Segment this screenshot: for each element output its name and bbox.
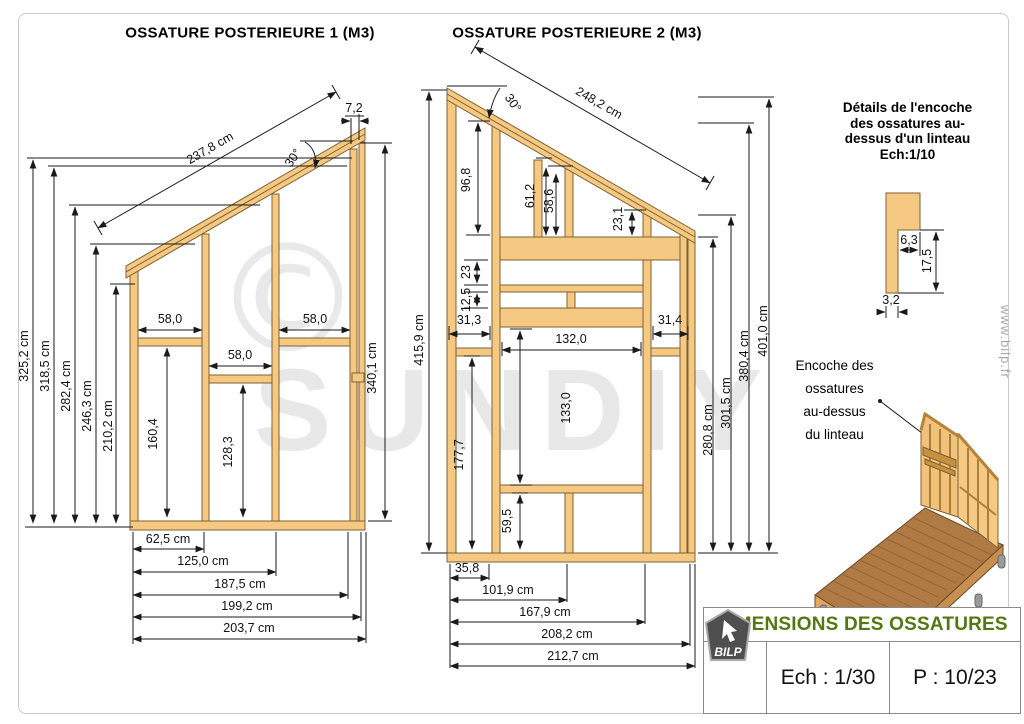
dim-label: 415,9 cm bbox=[412, 314, 426, 365]
dim-label: 23,1 bbox=[611, 207, 625, 231]
frame1-structure bbox=[126, 128, 365, 530]
bilp-logo-icon: BILP bbox=[704, 608, 752, 662]
dim-label: 59,5 bbox=[500, 509, 514, 533]
dim-label: 7,2 bbox=[345, 101, 362, 115]
dim-label: 282,4 cm bbox=[59, 360, 73, 411]
lintel-notch-callout: Encoche des ossatures au-dessus du linte… bbox=[786, 354, 883, 446]
callout-line: ossatures bbox=[786, 377, 883, 400]
detail-title: Détails de l'encoche des ossatures au- d… bbox=[815, 100, 1000, 162]
dim-label: 58,6 bbox=[542, 189, 556, 213]
dim-label: 160,4 bbox=[146, 418, 160, 449]
dim-label: 208,2 cm bbox=[541, 627, 592, 641]
dim-label: 23 bbox=[459, 265, 473, 279]
dim-label: 35,8 bbox=[455, 561, 479, 575]
dim-label: 17,5 bbox=[920, 249, 934, 273]
callout-line: au-dessus bbox=[786, 400, 883, 423]
dim-label: 128,3 bbox=[221, 436, 235, 467]
dim-label: 6,3 bbox=[900, 233, 917, 247]
detail-title-line: Ech:1/10 bbox=[815, 147, 1000, 163]
detail-title-line: Détails de l'encoche bbox=[815, 100, 1000, 116]
callout-line: Encoche des bbox=[786, 354, 883, 377]
dim-label: 212,7 cm bbox=[547, 649, 598, 663]
dim-label: 96,8 bbox=[459, 168, 473, 192]
dim-label: 62,5 cm bbox=[146, 532, 190, 546]
dim-label: 199,2 cm bbox=[221, 599, 272, 613]
dim-label: 3,2 bbox=[882, 293, 899, 307]
title-block: DIMENSIONS DES OSSATURES BILP Ech : 1/30… bbox=[703, 607, 1021, 714]
bilp-logo-text: BILP bbox=[714, 645, 742, 659]
dim-label: 246,3 cm bbox=[80, 380, 94, 431]
scale-cell: Ech : 1/30 bbox=[767, 642, 890, 713]
dim-label: 12,5 bbox=[459, 288, 473, 312]
dim-label: 61,2 bbox=[523, 184, 537, 208]
dim-label: 125,0 cm bbox=[177, 554, 228, 568]
dim-label: 401,0 cm bbox=[756, 305, 770, 356]
dim-label: 325,2 cm bbox=[17, 330, 31, 381]
dim-label: 187,5 cm bbox=[214, 577, 265, 591]
dim-label: 132,0 bbox=[555, 332, 586, 346]
dim-label: 101,9 cm bbox=[482, 583, 533, 597]
dim-label: 31,3 bbox=[457, 313, 481, 327]
bilp-logo: BILP bbox=[704, 642, 767, 713]
dim-label: 380,4 cm bbox=[737, 330, 751, 381]
dim-label: 280,8 cm bbox=[701, 404, 715, 455]
dim-label: 203,7 cm bbox=[223, 621, 274, 635]
dim-label: 318,5 cm bbox=[38, 340, 52, 391]
detail-title-line: des ossatures au- bbox=[815, 116, 1000, 132]
dim-label: 133,0 bbox=[559, 392, 573, 423]
dim-label: 31,4 bbox=[658, 313, 682, 327]
drawing-sheet: © SUNDIY www.bilp.fr bbox=[0, 0, 1024, 724]
dim-label: 210,2 cm bbox=[101, 400, 115, 451]
dim-label: 301,5 cm bbox=[719, 377, 733, 428]
dim-label: 340,1 cm bbox=[365, 342, 379, 393]
dim-label: 58,0 bbox=[228, 348, 252, 362]
detail-title-line: dessus d'un linteau bbox=[815, 131, 1000, 147]
dim-label: 167,9 cm bbox=[519, 605, 570, 619]
frame1-title: OSSATURE POSTERIEURE 1 (M3) bbox=[125, 25, 375, 42]
dim-label: 177,7 bbox=[452, 439, 466, 470]
frame2-title: OSSATURE POSTERIEURE 2 (M3) bbox=[452, 25, 702, 42]
page-number-cell: P : 10/23 bbox=[890, 642, 1020, 713]
callout-line: du linteau bbox=[786, 423, 883, 446]
dim-label: 58,0 bbox=[303, 312, 327, 326]
dim-label: 58,0 bbox=[158, 312, 182, 326]
